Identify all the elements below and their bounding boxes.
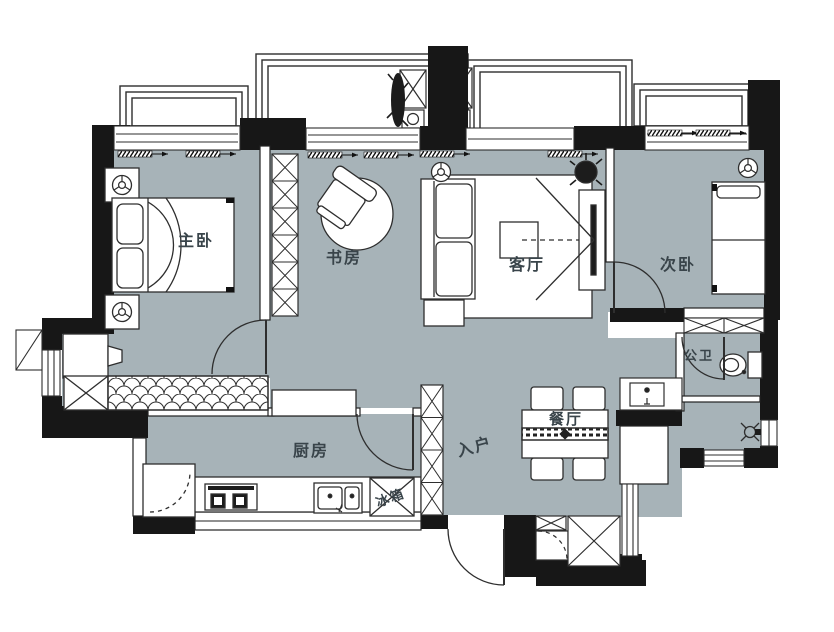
window-master-bay-sill — [114, 126, 240, 150]
hallway-cabinet — [64, 376, 108, 410]
window-second-bedroom-bay-sill — [645, 126, 749, 150]
label-kitchen: 厨房 — [293, 441, 329, 460]
dining-chair — [531, 387, 563, 410]
window-living-balcony-door — [466, 128, 574, 150]
dining-chair — [573, 458, 605, 480]
entrance-door — [448, 515, 504, 585]
window-shower-east — [761, 420, 777, 446]
label-dining-room: 餐厅 — [549, 410, 583, 428]
dining-chair — [531, 458, 563, 480]
lamp-icon — [113, 303, 132, 322]
window-study — [306, 128, 420, 150]
entry-small-cabinet — [536, 516, 566, 530]
sofa — [421, 179, 475, 299]
kitchen-sliding-panel — [272, 390, 356, 416]
dining-chair — [573, 387, 605, 410]
bay-window-second-bedroom — [634, 84, 754, 126]
lamp-icon — [113, 176, 132, 195]
second-bed — [712, 182, 765, 294]
lamp-icon — [739, 159, 758, 178]
corner-cabinet — [143, 464, 195, 517]
long-wardrobe — [108, 376, 268, 410]
bay-window-master — [120, 86, 248, 126]
label-master-bedroom: 主卧 — [178, 231, 214, 250]
entry-nook — [536, 516, 620, 566]
nook-floor — [536, 531, 568, 560]
stove — [205, 484, 257, 510]
window-shaft-strip — [622, 484, 638, 556]
floor-lamp-icon — [432, 163, 451, 182]
label-living-room: 客厅 — [509, 255, 545, 274]
table-runner — [522, 428, 608, 440]
study-wardrobe — [272, 154, 298, 316]
ac-unit-exterior — [16, 330, 42, 370]
label-bathroom: 公卫 — [684, 348, 714, 363]
bathroom-top-cabinet — [684, 318, 764, 333]
master-bed — [112, 198, 234, 292]
side-table — [424, 300, 464, 326]
toilet — [720, 352, 762, 378]
window-bathroom-south — [704, 450, 744, 466]
label-second-bedroom: 次卧 — [660, 255, 696, 274]
floor-plan: 主卧 书房 客厅 次卧 公卫 餐厅 厨房 入户 冰箱 — [0, 0, 834, 632]
shoe-cabinet — [568, 516, 620, 566]
label-study: 书房 — [326, 248, 362, 267]
kitchen-sink — [314, 483, 362, 513]
room-living-room — [421, 153, 605, 326]
entry-tall-cabinet — [421, 385, 443, 515]
washbasin — [620, 378, 682, 410]
window-hallway-west — [42, 350, 60, 396]
